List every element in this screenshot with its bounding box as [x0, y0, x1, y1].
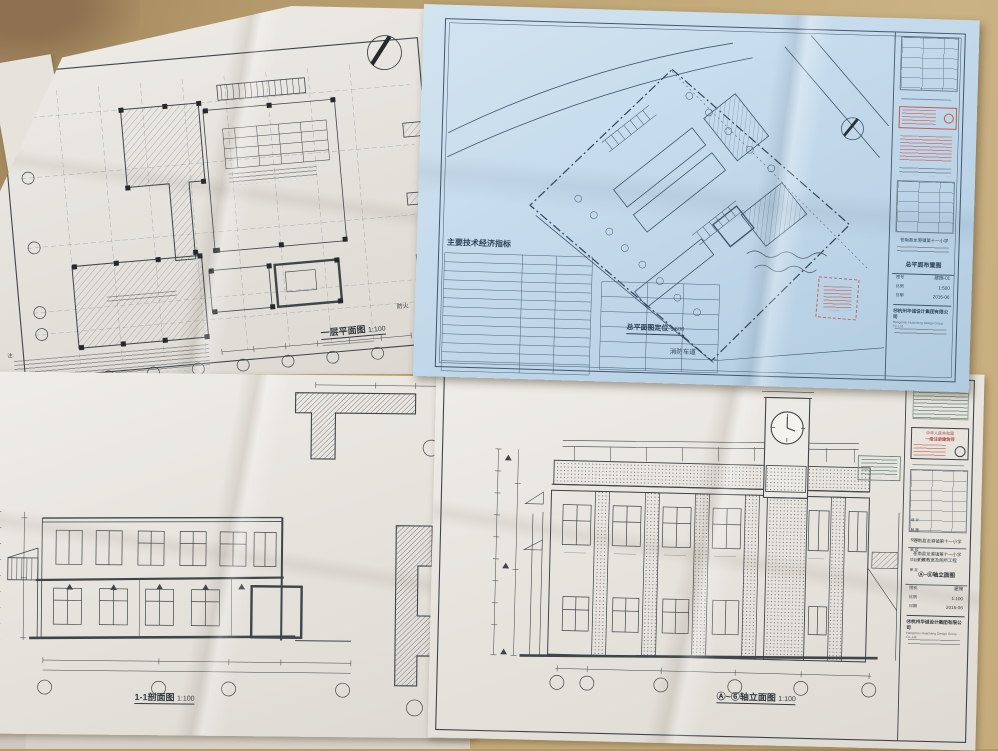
scale-value: 1:500 — [938, 285, 950, 290]
floor-slab — [36, 575, 284, 583]
section-building — [0, 512, 352, 698]
fire-zone-partial-label: 防火 — [396, 303, 409, 310]
note-line — [912, 464, 964, 466]
round-seal-icon — [944, 113, 954, 123]
roads — [442, 25, 894, 368]
company-address — [894, 328, 946, 337]
no-label: 图号 — [896, 274, 904, 280]
lower-windows — [53, 588, 219, 626]
category-label: 图别 — [909, 585, 917, 591]
round-seal-icon — [955, 446, 966, 457]
siteplan-title-block: 苍南县龙港镇第十一小学 总平面布置图 图号 建施-01 比例 1:500 日期 … — [889, 34, 961, 380]
site-plan-caption: 总平面图定位 1:500 — [626, 324, 684, 335]
date-value: 2016-06 — [946, 604, 963, 609]
left-annex — [522, 492, 544, 656]
bottom-dimensions — [550, 665, 876, 697]
indicator-table — [441, 253, 592, 375]
date-value: 2016-06 — [933, 294, 950, 299]
drawing-name: 总平面布置图 — [892, 259, 954, 270]
fire-lane-label: 消防车道 — [670, 349, 696, 357]
elevation-drawing — [427, 361, 984, 750]
signature-labels: 设 计 制 图 校 对 审 核 项目负责 审 定 — [910, 515, 926, 575]
category-value: 建施 — [954, 586, 963, 592]
floor-plan-drawing — [0, 2, 462, 409]
elevation-title-block: 中华人民共和国 一级注册建筑师 设 计 制 图 校 对 审 核 项目负责 审 定… — [902, 383, 973, 738]
section-title: 1-1剖面图 1:100 — [134, 693, 194, 705]
sheet-elevation: Ⓐ~⑥轴立面图 1:100 中华人民共和国 一级注册建筑师 设 计 制 图 校 … — [427, 361, 984, 750]
site-buildings — [610, 90, 810, 315]
date-label: 日期 — [895, 292, 903, 298]
schedule-table — [223, 120, 330, 169]
hatched-band — [554, 460, 870, 492]
note-lines — [899, 167, 951, 177]
note-line — [901, 98, 951, 100]
elevation-building — [490, 374, 903, 698]
review-stamp-text — [861, 459, 897, 478]
project-name: 苍南县龙港镇第十一小学 — [893, 237, 955, 245]
clock-tower — [755, 380, 814, 660]
upper-windows — [56, 530, 276, 566]
handwritten-note — [746, 251, 827, 273]
signoff-table — [900, 36, 960, 92]
sheet-floor-plan: 注: 防火 一层平面图 1:100 — [0, 6, 460, 374]
mid-room — [209, 265, 272, 312]
stamp-cert: 一级注册建筑师 — [914, 436, 966, 443]
north-arrow-icon — [841, 117, 864, 140]
left-dimensions — [491, 449, 522, 656]
section-drawing — [0, 371, 478, 738]
photo-of-blueprints: 注: 防火 一层平面图 1:100 — [0, 0, 998, 749]
elevation-title: Ⓐ~⑥轴立面图 1:100 — [716, 692, 796, 705]
partitions — [66, 577, 245, 637]
right-stairs — [866, 512, 900, 661]
architect-stamp: 中华人民共和国 一级注册建筑师 — [910, 427, 969, 460]
floor-plan-notes-label: 注: — [7, 354, 14, 360]
bold-bay — [251, 586, 302, 638]
scale-label: 比例 — [896, 283, 904, 289]
left-stairs — [7, 548, 38, 638]
signature-table — [895, 180, 955, 234]
sheet-section: 1-1剖面图 1:100 — [0, 371, 478, 738]
bold-wall-room — [275, 259, 342, 306]
scale-value: 1:100 — [951, 596, 963, 601]
scale-label: 比例 — [909, 594, 917, 600]
hatched-zone-upper — [120, 103, 211, 264]
red-stamp-registration — [899, 106, 958, 130]
red-seal-text — [823, 286, 852, 311]
no-value: 建施-01 — [934, 275, 950, 281]
stamp-details — [914, 444, 946, 457]
left-dimensions — [0, 512, 27, 640]
stair-strip — [217, 78, 306, 101]
date-label: 日期 — [909, 603, 917, 609]
bottom-dimensions — [38, 657, 351, 697]
red-stamp-approval — [900, 135, 953, 163]
company-address — [908, 639, 960, 647]
project-notes — [897, 246, 949, 255]
sheet-site-plan: 主要技术经济指标 总平面图定位 1:500 消防车道 苍南县龙港镇第十一小学 总… — [413, 4, 980, 392]
